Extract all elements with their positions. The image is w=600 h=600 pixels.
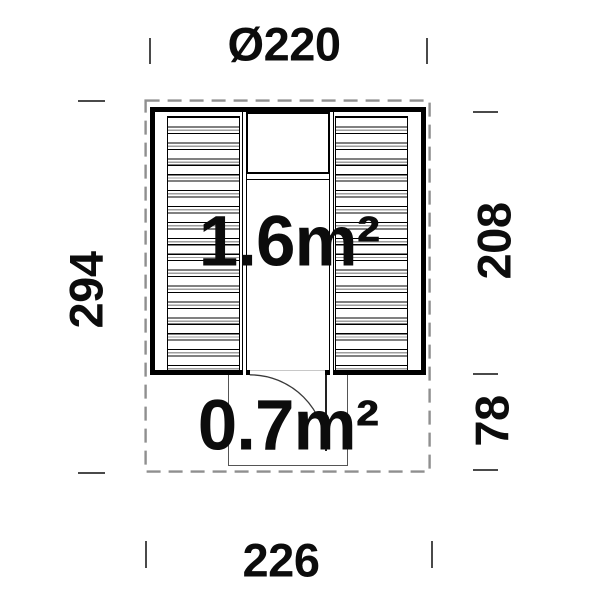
dim-right-upper-label: 208: [471, 203, 518, 280]
window: [246, 112, 330, 175]
dim-right-tick-middle: [473, 373, 498, 375]
area-label-interior: 1.6m²: [199, 207, 379, 278]
dim-top-label: Ø220: [228, 21, 341, 68]
dim-left-label: 294: [63, 252, 110, 329]
door-threshold-line: [250, 370, 325, 371]
floor-plan-canvas: Ø220 226 294 208 78 1.6m² 0.7m²: [0, 0, 600, 600]
dim-left-tick-top: [78, 100, 105, 102]
dim-top-tick-left: [149, 38, 151, 64]
area-label-porch: 0.7m²: [198, 391, 378, 462]
dim-bottom-tick-left: [145, 541, 147, 568]
dim-right-tick-bottom: [473, 469, 498, 471]
dim-right-tick-top: [473, 111, 498, 113]
dim-right-lower-label: 78: [469, 395, 516, 446]
wall-left: [150, 107, 155, 375]
window-sill-line: [246, 179, 330, 180]
dim-top-tick-right: [426, 38, 428, 64]
dim-bottom-tick-right: [431, 541, 433, 568]
wall-bottom-left: [150, 370, 250, 375]
dim-left-tick-bottom: [78, 472, 105, 474]
dim-bottom-label: 226: [243, 537, 320, 584]
wall-bottom-right: [325, 370, 426, 375]
wall-right: [421, 107, 426, 375]
